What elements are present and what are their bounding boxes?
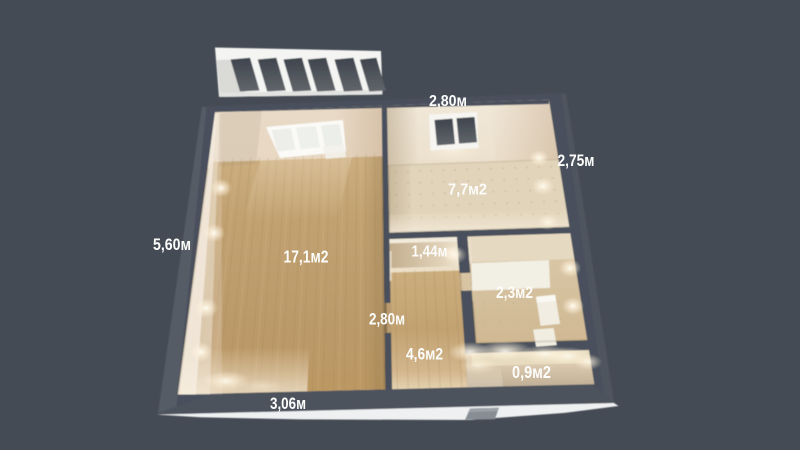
svg-text:17,1м2: 17,1м2 <box>284 246 329 266</box>
svg-text:7,7м2: 7,7м2 <box>448 182 487 199</box>
svg-text:2,80м: 2,80м <box>429 93 467 110</box>
svg-text:1,44м: 1,44м <box>412 244 448 261</box>
svg-text:2,80м: 2,80м <box>369 309 405 328</box>
svg-text:0,9м2: 0,9м2 <box>512 362 551 382</box>
svg-text:2,3м2: 2,3м2 <box>496 284 533 302</box>
svg-text:3,06м: 3,06м <box>270 394 306 413</box>
svg-text:5,60м: 5,60м <box>153 235 191 254</box>
svg-text:4,6м2: 4,6м2 <box>406 344 443 363</box>
svg-text:2,75м: 2,75м <box>558 151 595 170</box>
